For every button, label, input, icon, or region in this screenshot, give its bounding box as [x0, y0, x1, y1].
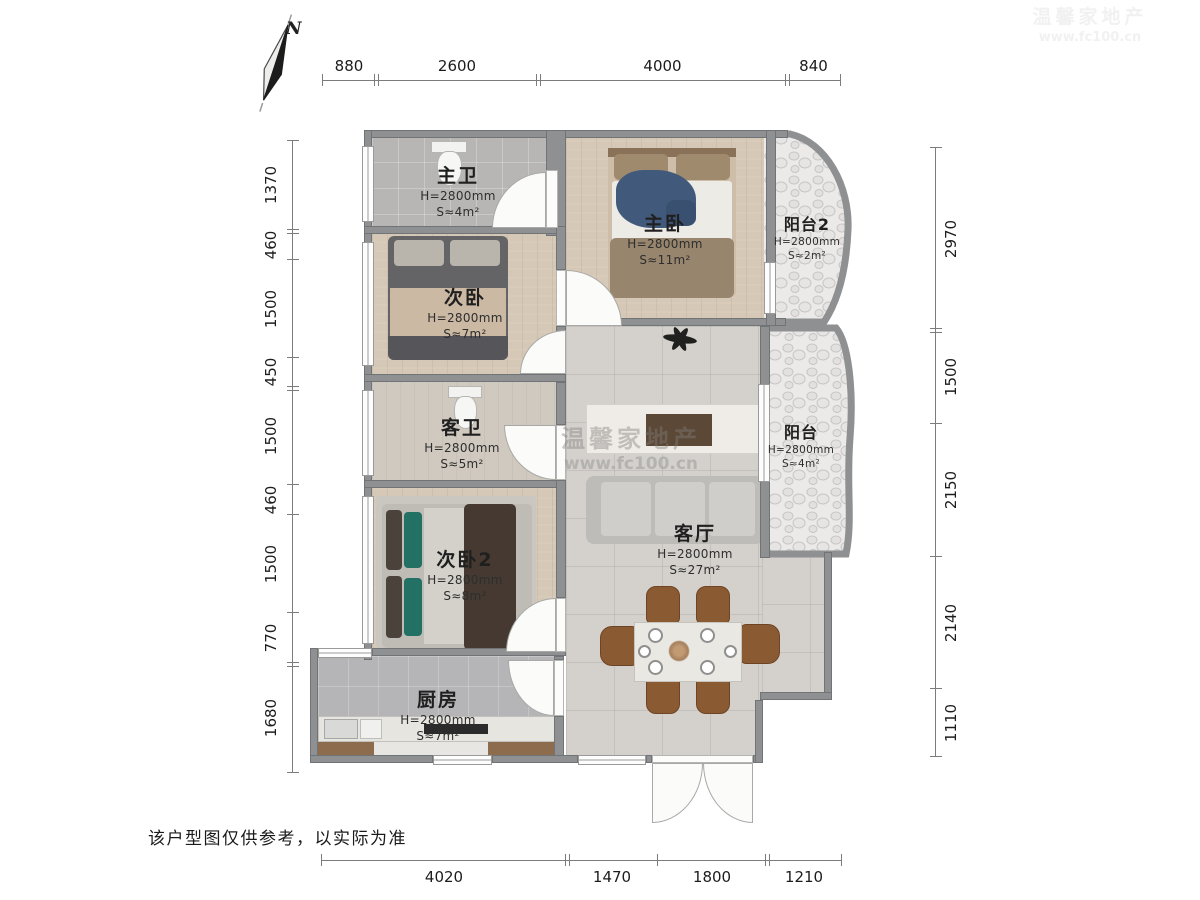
window [362, 390, 374, 476]
plate [638, 645, 651, 658]
dim-left-8: 1680 [262, 683, 280, 753]
window [433, 755, 492, 765]
dim-line-right [935, 147, 936, 756]
disclaimer-text: 该户型图仅供参考，以实际为准 [148, 824, 407, 849]
entry-door-header [652, 755, 753, 763]
window [318, 648, 372, 658]
dim-line-left [292, 140, 293, 772]
floorplan-canvas: 主卫 H=2800mm S≈4m² 主卧 H=2800mm S≈11m² 阳台2… [0, 0, 1200, 900]
room-label-living-room: 客厅 H=2800mm S≈27m² [635, 524, 755, 577]
centerpiece [668, 640, 690, 662]
dim-bottom-0: 4020 [321, 868, 567, 886]
kitchen-sink [324, 719, 358, 739]
wall [364, 130, 788, 138]
dim-bottom-3: 1210 [767, 868, 841, 886]
dim-right-1: 1500 [942, 342, 960, 412]
window [362, 496, 374, 644]
svg-text:N: N [285, 19, 303, 39]
dim-top-3: 840 [787, 57, 840, 75]
pillow [386, 510, 402, 570]
dim-bottom-1: 1470 [567, 868, 657, 886]
dim-right-4: 1110 [942, 688, 960, 758]
door-leaf [554, 660, 564, 716]
window [362, 146, 374, 222]
wall [755, 700, 763, 763]
plate [700, 628, 715, 643]
dim-right-2: 2150 [942, 455, 960, 525]
plate [700, 660, 715, 675]
room-label-balcony: 阳台 H=2800mm S≈4m² [764, 424, 838, 471]
entry-door-arc-left [652, 763, 703, 823]
pillow [386, 576, 402, 638]
plate [724, 645, 737, 658]
door-leaf [546, 170, 558, 228]
pillow [676, 154, 730, 180]
wall [760, 692, 832, 700]
wall [310, 648, 318, 763]
dim-top-2: 4000 [538, 57, 787, 75]
dim-left-1: 460 [262, 210, 280, 280]
wall [556, 480, 566, 598]
plate [648, 628, 663, 643]
north-arrow-icon: N [240, 10, 314, 116]
dim-left-7: 770 [262, 603, 280, 673]
wall [492, 755, 578, 763]
dim-left-4: 1500 [262, 401, 280, 471]
plate [648, 660, 663, 675]
wall [364, 480, 566, 488]
dim-line-bottom [321, 860, 841, 861]
room-label-balcony-2: 阳台2 H=2800mm S≈2m² [770, 216, 844, 263]
wall [364, 374, 566, 382]
dim-top-0: 880 [322, 57, 376, 75]
window [362, 242, 374, 366]
room-label-master-bedroom: 主卧 H=2800mm S≈11m² [605, 214, 725, 267]
wall [556, 226, 566, 270]
ceiling-fan-icon [656, 324, 704, 354]
pillow [450, 240, 500, 266]
door-leaf [556, 425, 566, 480]
dim-right-0: 2970 [942, 204, 960, 274]
window [764, 262, 776, 314]
dim-left-5: 460 [262, 465, 280, 535]
dim-left-6: 1500 [262, 529, 280, 599]
door-leaf [556, 270, 566, 326]
tv [646, 414, 712, 446]
dim-line-top [322, 80, 840, 81]
room-label-bedroom-2: 次卧 H=2800mm S≈7m² [405, 288, 525, 341]
room-label-bedroom-3: 次卧2 H=2800mm S≈8m² [405, 550, 525, 603]
watermark-top-right: 温馨家地产 www.fc100.cn [1000, 6, 1180, 46]
entry-door-arc-right [703, 763, 753, 823]
door-leaf [556, 598, 566, 652]
dining-chair [646, 586, 680, 624]
dining-chair [696, 586, 730, 624]
pillow [394, 240, 444, 266]
dim-left-3: 450 [262, 337, 280, 407]
window [578, 755, 646, 765]
dim-bottom-2: 1800 [657, 868, 767, 886]
dining-chair [600, 626, 638, 666]
dim-right-3: 2140 [942, 588, 960, 658]
wall [824, 552, 832, 700]
wall [556, 382, 566, 425]
room-label-master-bath: 主卫 H=2800mm S≈4m² [398, 166, 518, 219]
wall [310, 755, 433, 763]
dining-chair [740, 624, 780, 664]
dim-left-2: 1500 [262, 274, 280, 344]
room-label-kitchen: 厨房 H=2800mm S≈7m² [378, 690, 498, 743]
dim-top-1: 2600 [376, 57, 538, 75]
room-label-guest-bath: 客卫 H=2800mm S≈5m² [402, 418, 522, 471]
